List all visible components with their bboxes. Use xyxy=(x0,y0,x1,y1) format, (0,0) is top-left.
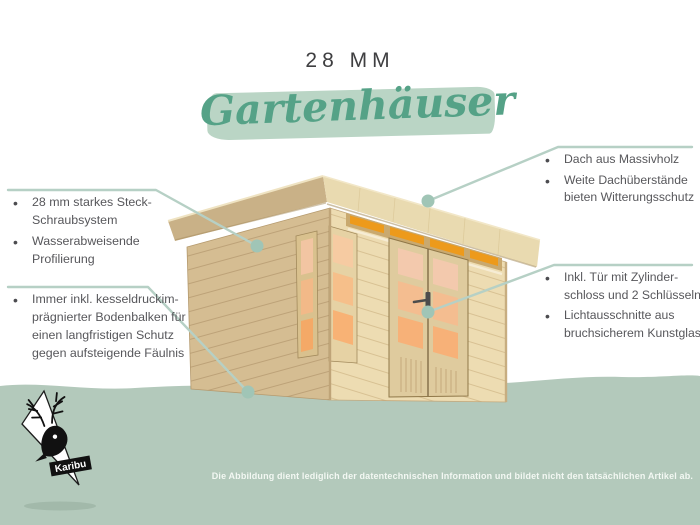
side-window xyxy=(296,231,318,358)
size-label: 28 MM xyxy=(0,49,700,73)
feature-list: Inkl. Tür mit Zylinder-schloss und 2 Sch… xyxy=(540,269,700,343)
feature-item: Weite Dachüberstände bieten Witterungssc… xyxy=(540,172,700,207)
feature-item: Lichtausschnitte aus bruchsicherem Kunst… xyxy=(540,307,700,342)
front-window xyxy=(329,226,357,363)
marker-dot-wall xyxy=(251,240,264,253)
feature-item: Inkl. Tür mit Zylinder-schloss und 2 Sch… xyxy=(540,269,700,304)
marker-dot-base xyxy=(242,386,255,399)
logo-shadow xyxy=(24,502,96,511)
feature-item: Wasserabweisende Profilierung xyxy=(8,233,164,269)
feature-note-roof: Dach aus Massivholz Weite Dachüberstände… xyxy=(540,151,700,210)
feature-note-construction: 28 mm starkes Steck-Schraubsystem Wasser… xyxy=(8,194,164,272)
feature-item: Dach aus Massivholz xyxy=(540,151,700,169)
feature-item: Immer inkl. kesseldruckim-prägnierter Bo… xyxy=(8,291,192,363)
marker-dot-roof xyxy=(422,195,435,208)
feature-note-foundation: Immer inkl. kesseldruckim-prägnierter Bo… xyxy=(8,291,192,366)
infographic-page: Karibu 28 MM Gartenhäuser 28 mm starkes … xyxy=(0,0,700,525)
feature-item: 28 mm starkes Steck-Schraubsystem xyxy=(8,194,164,230)
feature-list: Dach aus Massivholz Weite Dachüberstände… xyxy=(540,151,700,207)
feature-list: 28 mm starkes Steck-Schraubsystem Wasser… xyxy=(8,194,164,269)
feature-list: Immer inkl. kesseldruckim-prägnierter Bo… xyxy=(8,291,192,363)
disclaimer-text: Die Abbildung dient lediglich der datent… xyxy=(212,471,693,481)
marker-dot-door xyxy=(422,306,435,319)
feature-note-door: Inkl. Tür mit Zylinder-schloss und 2 Sch… xyxy=(540,269,700,346)
page-title: Gartenhäuser xyxy=(199,79,500,135)
